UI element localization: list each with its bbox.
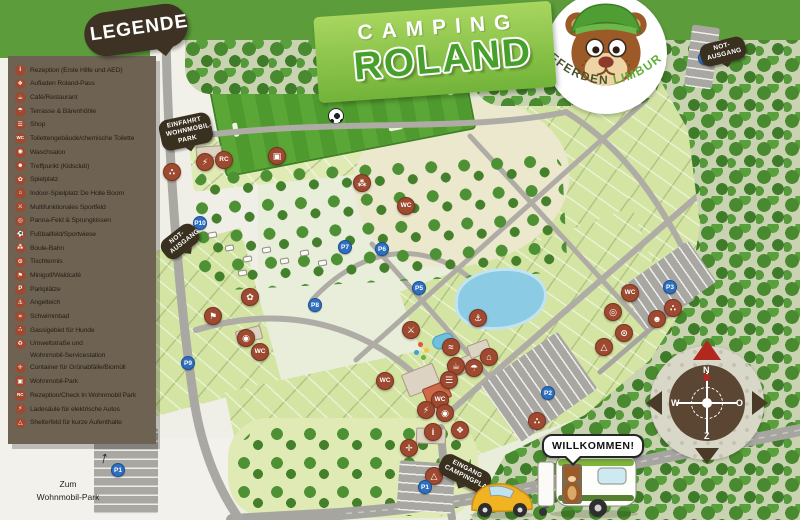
compass-north-arrow bbox=[693, 340, 721, 360]
parking-badge-p2: P2 bbox=[541, 386, 555, 400]
legend-item-laundry: ◉Waschsalon bbox=[15, 147, 151, 158]
legend-label: Tischtennis bbox=[30, 258, 62, 265]
soccer-field-icon: ⚽ bbox=[15, 229, 26, 240]
minigolf-icon: ⚑ bbox=[15, 270, 26, 281]
aufladen-roland-pass-marker: ❖ bbox=[451, 421, 469, 439]
cafe-icon: ☕ bbox=[15, 92, 26, 103]
rezeption-marker: i bbox=[424, 423, 442, 441]
ev-charging-icon: ⚡ bbox=[15, 404, 26, 415]
multifunktionales-sportfeld-marker: ⚔ bbox=[402, 321, 420, 339]
panna-feld-marker: ◎ bbox=[604, 303, 622, 321]
compass-z: Z bbox=[704, 431, 710, 441]
indoor-spielplatz-marker: ⌂ bbox=[480, 348, 498, 366]
legend-label: Terrasse & Bärenhöhle bbox=[30, 108, 96, 115]
compass-rose: N O Z W bbox=[650, 346, 764, 460]
parking-badge-p3: P3 bbox=[663, 280, 677, 294]
legend-item-playground: ✿Spielplatz bbox=[15, 175, 151, 186]
indoor-playground-icon: ⌂ bbox=[15, 188, 26, 199]
legend-item-motorhome-park: ▣Wohnmobil-Park bbox=[15, 376, 151, 387]
legend-item-service-station: ♻Umweltstraße und bbox=[15, 339, 151, 350]
legend-label: Angelteich bbox=[30, 299, 60, 306]
toiletten-nord-marker: WC bbox=[397, 197, 415, 215]
playground-dot bbox=[424, 348, 429, 353]
legend-label: Toilettengebäude/chemische Toilette bbox=[30, 135, 134, 142]
zum-wohnmobil-note: Zum Wohnmobil-Park bbox=[12, 478, 124, 504]
legend-label: Panna-Feld & Sprungkissen bbox=[30, 217, 111, 224]
shelterfeld-ost-marker: △ bbox=[595, 338, 613, 356]
playground-dot bbox=[414, 350, 419, 355]
compass-w: W bbox=[671, 398, 680, 408]
legend-label: Aufladen Roland-Pass bbox=[30, 80, 95, 87]
gassigebiet-hunde-marker: ∴ bbox=[163, 163, 181, 181]
legend-label: Rezeption (Erste Hilfe und AED) bbox=[30, 67, 122, 74]
laundry-icon: ◉ bbox=[15, 147, 26, 158]
gassigebiet-sued-marker: ∴ bbox=[528, 412, 546, 430]
legend-panel: iRezeption (Erste Hilfe und AED)❖Auflade… bbox=[8, 56, 156, 444]
legend-item-reception-info: iRezeption (Erste Hilfe und AED) bbox=[15, 65, 151, 76]
waschsalon-mitte-marker: ◉ bbox=[436, 404, 454, 422]
parking-badge-p5: P5 bbox=[412, 281, 426, 295]
legend-label: Minigolf/Waldcafé bbox=[30, 272, 81, 279]
shop-icon: ☰ bbox=[15, 120, 26, 131]
parking-badge-p9: P9 bbox=[181, 356, 195, 370]
compass-o: O bbox=[736, 398, 743, 408]
legend-item-cafe: ☕Café/Restaurant bbox=[15, 92, 151, 103]
legend-item-fishing-pond: ⚓Angelteich bbox=[15, 298, 151, 309]
legend-item-service-station-line2: Wohnmobil-Servicestation bbox=[30, 352, 151, 359]
legend-item-green-waste: ✛Container für Grünabfälle/Biomüll bbox=[15, 363, 151, 374]
legend-label: Ladesäule für elektrische Autos bbox=[30, 406, 120, 413]
shelter-field-icon: △ bbox=[15, 418, 26, 429]
service-station-icon: ♻ bbox=[15, 339, 26, 350]
legend-label: Treffpunkt (Kidsclub) bbox=[30, 163, 89, 170]
treffpunkt-kidsclub-marker: ☻ bbox=[648, 310, 666, 328]
legend-item-kidsclub: ☻Treffpunkt (Kidsclub) bbox=[15, 161, 151, 172]
legend-label: Rezeption/Check In Wohnmobil Park bbox=[30, 392, 136, 399]
legend-label: Schwimmbad bbox=[30, 313, 69, 320]
parking-icon: P bbox=[15, 284, 26, 295]
gassigebiet-ost-marker: ∴ bbox=[664, 299, 682, 317]
willkommen-bubble: WILLKOMMEN! bbox=[542, 434, 644, 458]
shop-marker: ☰ bbox=[440, 371, 458, 389]
compass-n: N bbox=[703, 365, 710, 375]
legend-item-parking: PParkplätze bbox=[15, 284, 151, 295]
legend-label: Fußballfeld/Sportwiese bbox=[30, 231, 96, 238]
legend-label: Wohnmobil-Park bbox=[30, 378, 78, 385]
legend-item-table-tennis: ⊙Tischtennis bbox=[15, 257, 151, 268]
willkommen-text: WILLKOMMEN! bbox=[552, 440, 634, 452]
legend-label: Parkplätze bbox=[30, 286, 61, 293]
toiletten-nordost-marker: WC bbox=[621, 284, 639, 302]
rc-checkin-icon: RC bbox=[15, 390, 26, 401]
parking-badge-p1: P1 bbox=[418, 480, 432, 494]
ladesaeule-wohnmobil-marker: ⚡ bbox=[196, 153, 214, 171]
legend-item-dog-walking: ∴Gassigebiet für Hunde bbox=[15, 325, 151, 336]
parking-badge-p1: P1 bbox=[111, 463, 125, 477]
legend-title: LEGENDE bbox=[89, 11, 184, 48]
legend-item-soccer-field: ⚽Fußballfeld/Sportwiese bbox=[15, 229, 151, 240]
parking-badge-p7: P7 bbox=[338, 240, 352, 254]
reception-info-icon: i bbox=[15, 65, 26, 76]
legend-label: Shop bbox=[30, 121, 45, 128]
minigolf-marker: ⚑ bbox=[204, 307, 222, 325]
legend-item-panna-field: ◎Panna-Feld & Sprungkissen bbox=[15, 216, 151, 227]
legend-item-toilets: WCToilettengebäude/chemische Toilette bbox=[15, 133, 151, 144]
dog-walking-icon: ∴ bbox=[15, 325, 26, 336]
tischtennis-marker: ⊙ bbox=[615, 324, 633, 342]
legend-item-indoor-playground: ⌂Indoor-Spielplatz De Holle Boom bbox=[15, 188, 151, 199]
schwimmbad-marker: ≈ bbox=[442, 338, 460, 356]
compass-face: N O Z W bbox=[669, 365, 745, 441]
legend-item-swimming-pool: ≈Schwimmbad bbox=[15, 311, 151, 322]
terrasse-baerenhoehle-marker: ☂ bbox=[465, 359, 483, 377]
motorhome-park-icon: ▣ bbox=[15, 376, 26, 387]
playground-dot bbox=[418, 342, 423, 347]
playground-icon: ✿ bbox=[15, 175, 26, 186]
legend-label: Umweltstraße und bbox=[30, 340, 83, 347]
legend-label: Café/Restaurant bbox=[30, 94, 77, 101]
terrace-icon: ☂ bbox=[15, 106, 26, 117]
container-gruenabfaelle-marker: ✛ bbox=[400, 439, 418, 457]
legend-label: Multifunktionales Sportfeld bbox=[30, 204, 106, 211]
toilets-icon: WC bbox=[15, 133, 26, 144]
green-waste-icon: ✛ bbox=[15, 363, 26, 374]
legend-label: Boule-Bahn bbox=[30, 245, 64, 252]
legend-label: Gassigebiet für Hunde bbox=[30, 327, 94, 334]
legend-item-shelter-field: △Shelterfeld für kurze Aufenthalte bbox=[15, 418, 151, 429]
legend-item-ev-charging: ⚡Ladesäule für elektrische Autos bbox=[15, 404, 151, 415]
angelteich-marker: ⚓ bbox=[469, 309, 487, 327]
waschsalon-west-marker: ◉ bbox=[237, 329, 255, 347]
legend-item-roland-pass: ❖Aufladen Roland-Pass bbox=[15, 79, 151, 90]
legend-item-minigolf: ⚑Minigolf/Waldcafé bbox=[15, 270, 151, 281]
legend-label: Shelterfeld für kurze Aufenthalte bbox=[30, 419, 122, 426]
toiletten-ost-marker: WC bbox=[376, 372, 394, 390]
legend-item-boule: ⁂Boule-Bahn bbox=[15, 243, 151, 254]
ladesaeule-mitte-marker: ⚡ bbox=[417, 401, 435, 419]
table-tennis-icon: ⊙ bbox=[15, 257, 26, 268]
legend-label: Container für Grünabfälle/Biomüll bbox=[30, 364, 126, 371]
fishing-pond-icon: ⚓ bbox=[15, 298, 26, 309]
parking-badge-p8: P8 bbox=[308, 298, 322, 312]
legend-item-multisport: ⚔Multifunktionales Sportfeld bbox=[15, 202, 151, 213]
parking-badge-p6: P6 bbox=[375, 242, 389, 256]
legend-item-rc-checkin: RCRezeption/Check In Wohnmobil Park bbox=[15, 390, 151, 401]
swimming-pool-icon: ≈ bbox=[15, 311, 26, 322]
rc-checkin-marker: RC bbox=[215, 151, 233, 169]
kidsclub-icon: ☻ bbox=[15, 161, 26, 172]
boule-icon: ⁂ bbox=[15, 243, 26, 254]
roland-pass-icon: ❖ bbox=[15, 79, 26, 90]
soccer-ball-icon bbox=[328, 108, 344, 124]
wohnmobil-park-marker: ▣ bbox=[268, 147, 286, 165]
legend-label: Waschsalon bbox=[30, 149, 65, 156]
legend-label: Indoor-Spielplatz De Holle Boom bbox=[30, 190, 124, 197]
camping-roland-map: ∴⚡RC▣⁂WC✿⚑◉WC⚔⚓≈⌂☕☂☰WC⚡◉i❖✛△WCWC◎☻⊙△∴∴ P… bbox=[0, 0, 800, 520]
playground-dot bbox=[421, 355, 426, 360]
panna-field-icon: ◎ bbox=[15, 216, 26, 227]
boule-bahn-marker: ⁂ bbox=[353, 174, 371, 192]
multisport-icon: ⚔ bbox=[15, 202, 26, 213]
legend-item-shop: ☰Shop bbox=[15, 120, 151, 131]
legend-item-terrace: ☂Terrasse & Bärenhöhle bbox=[15, 106, 151, 117]
spielplatz-west-marker: ✿ bbox=[241, 288, 259, 306]
legend-label: Spielplatz bbox=[30, 176, 58, 183]
toiletten-west-marker: WC bbox=[251, 343, 269, 361]
